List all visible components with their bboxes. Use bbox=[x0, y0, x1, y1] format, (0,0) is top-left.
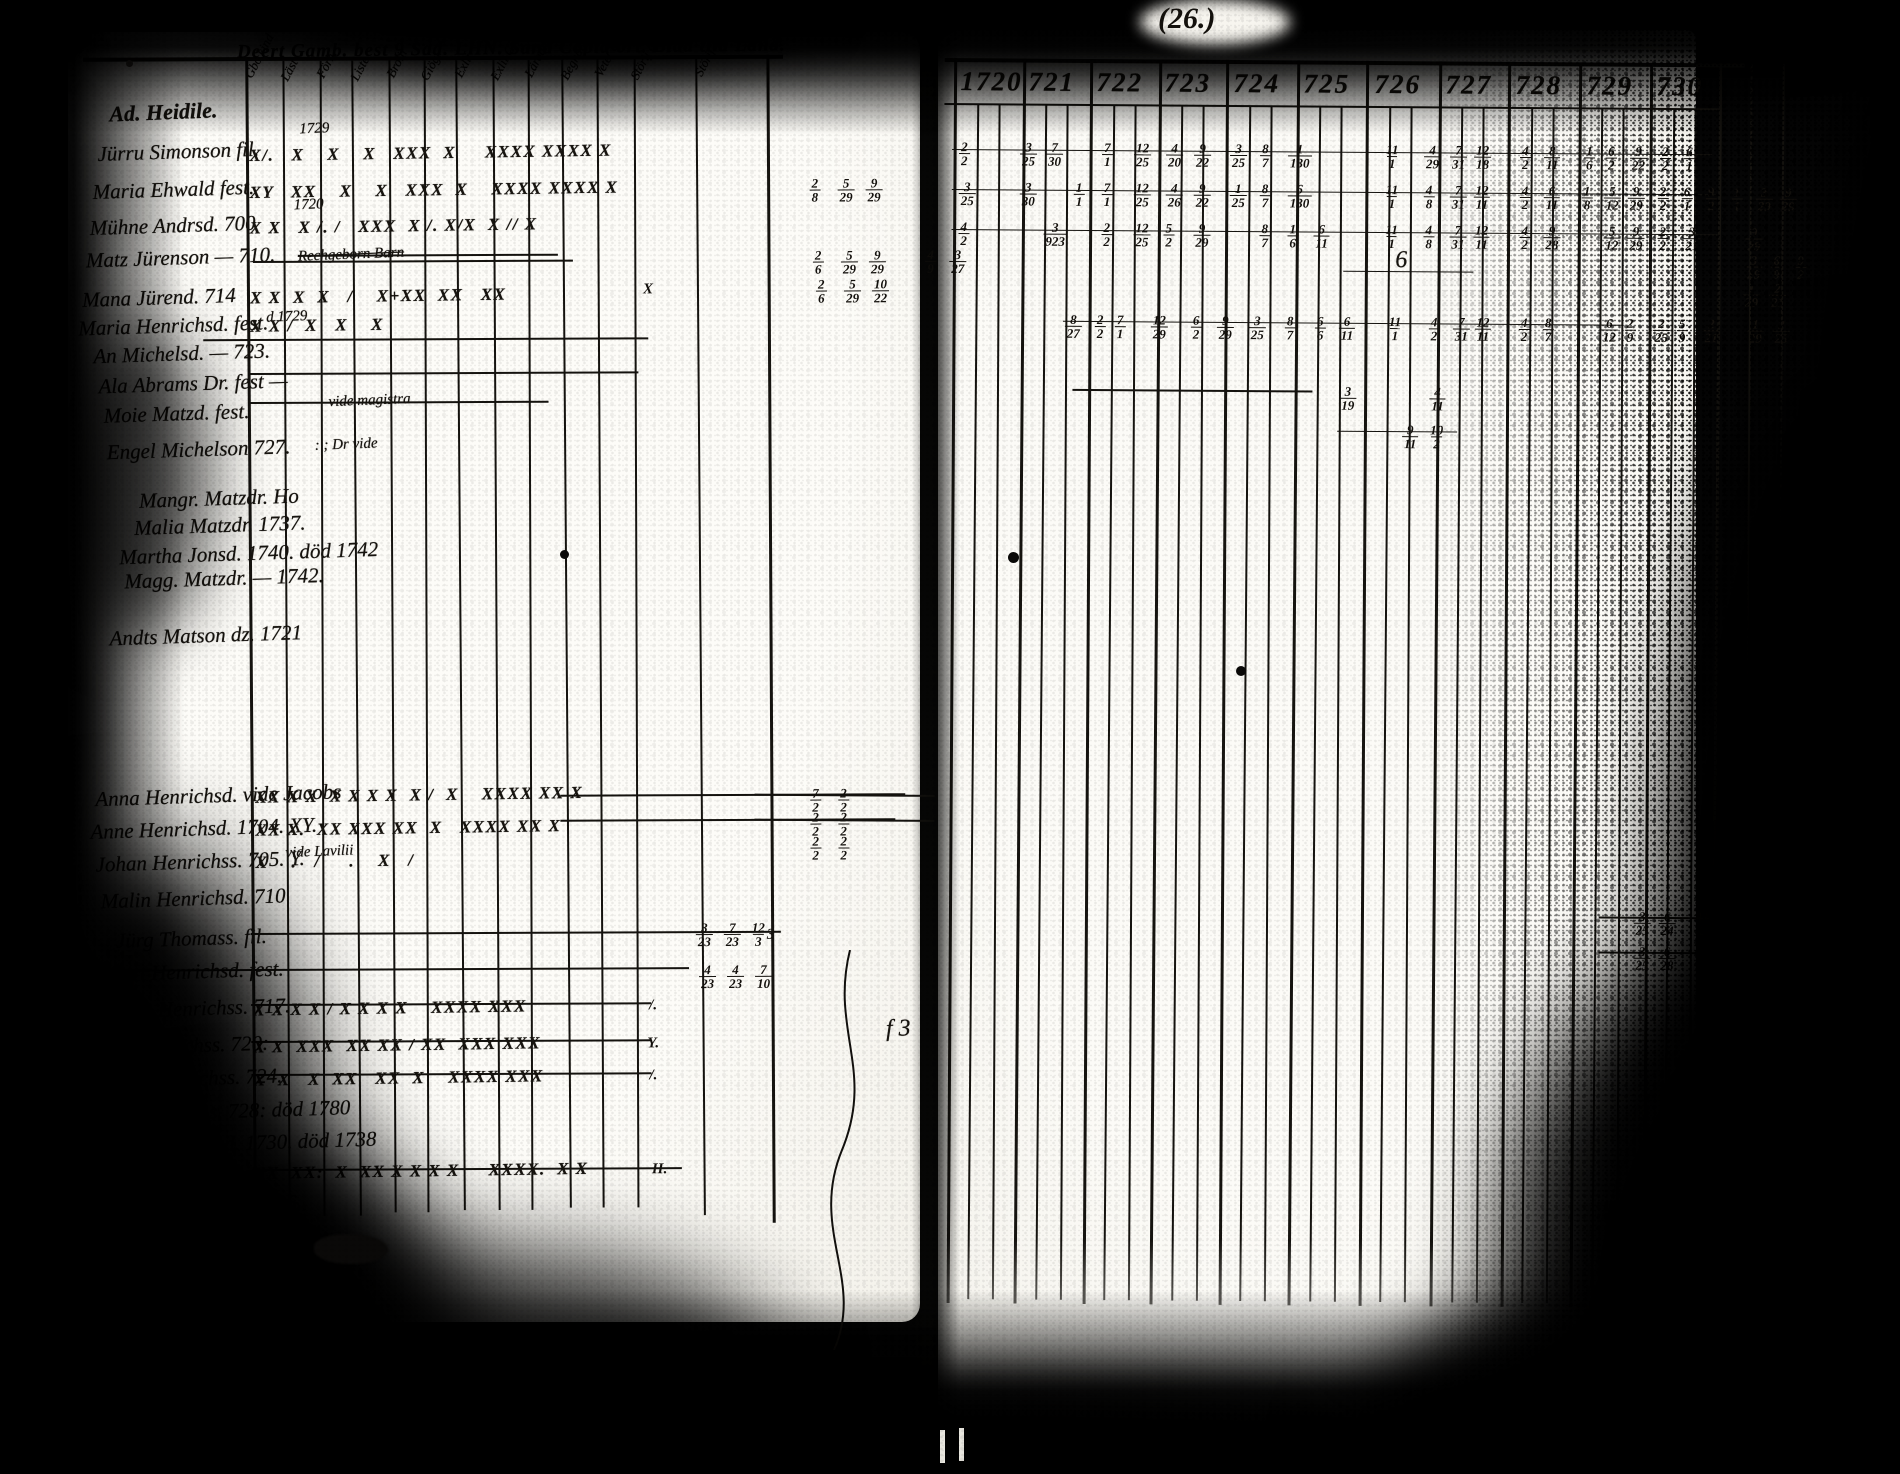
film-grain bbox=[0, 0, 1900, 1474]
microfilm-scan-frame: Deert Gamb. best 9 Sad. LHN. Sand Copia … bbox=[0, 0, 1900, 1474]
